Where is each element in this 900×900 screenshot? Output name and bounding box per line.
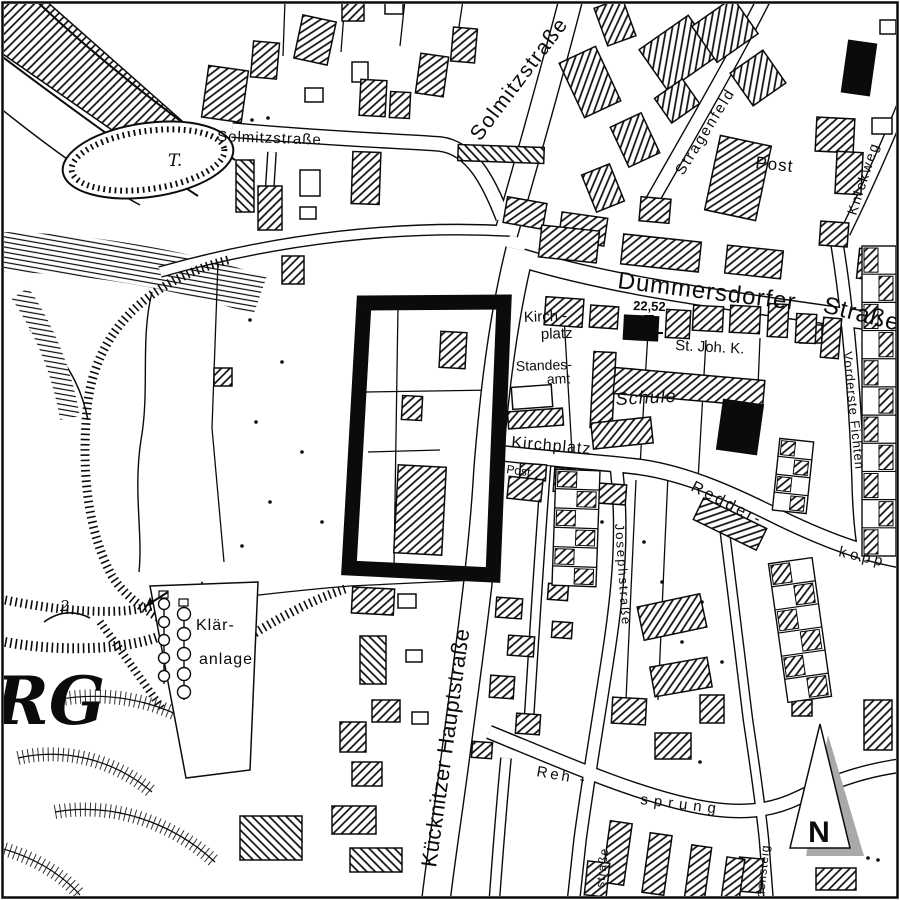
building <box>240 816 302 860</box>
building <box>258 186 282 230</box>
building <box>439 331 467 368</box>
tree-dot <box>866 856 870 860</box>
pond-label: T. <box>168 151 182 171</box>
poi-label-klaeranlage-1: Klär- <box>196 617 235 634</box>
tree-dot <box>680 640 684 644</box>
building <box>342 3 364 21</box>
building <box>351 587 394 615</box>
clarifier-circle <box>178 648 191 661</box>
terrace-cell <box>879 445 893 469</box>
building <box>880 20 896 34</box>
building <box>372 700 400 722</box>
building <box>412 712 428 724</box>
building <box>692 305 723 332</box>
building <box>406 650 422 662</box>
tree-dot <box>280 360 284 364</box>
terrace-cell <box>577 491 597 507</box>
clarifier-circle <box>178 686 191 699</box>
building <box>816 868 856 890</box>
terrace-row <box>862 246 896 556</box>
building <box>507 476 543 501</box>
clarifier-circle <box>159 671 170 682</box>
tree-dot <box>266 116 270 120</box>
terrace-cell <box>556 510 576 526</box>
building <box>398 594 416 608</box>
tree-dot <box>300 450 304 454</box>
building <box>590 351 616 428</box>
terrace-cell <box>807 676 829 698</box>
building <box>623 315 658 341</box>
map-label-rg: RG <box>0 662 105 740</box>
building <box>214 368 232 386</box>
terrace-cell <box>800 629 822 651</box>
building <box>350 848 402 872</box>
building <box>236 160 254 212</box>
clarifier-circle <box>159 653 170 664</box>
tree-dot <box>720 660 724 664</box>
terrace-cell <box>574 569 594 585</box>
tree-dot <box>268 500 272 504</box>
terrace-cell <box>879 333 893 357</box>
clarifier-circle <box>178 668 191 681</box>
building <box>589 305 618 329</box>
building <box>511 385 552 410</box>
terrace-cell <box>555 549 575 565</box>
building <box>515 713 540 735</box>
building <box>725 245 784 279</box>
building <box>351 152 381 205</box>
building <box>359 79 387 116</box>
elevation-label: 22,52 <box>633 298 666 314</box>
building <box>665 309 690 338</box>
tree-dot <box>660 580 664 584</box>
building <box>360 636 386 684</box>
clarifier-circle <box>159 617 170 628</box>
building <box>305 88 323 102</box>
square-label-kirchplatz-2: platz <box>541 325 573 343</box>
clarifier-circle <box>178 608 191 621</box>
building <box>300 207 316 219</box>
terrace-cell <box>879 389 893 413</box>
building <box>795 313 816 343</box>
terrace-cell <box>780 441 795 456</box>
tree-dot <box>254 420 258 424</box>
tree-dot <box>600 520 604 524</box>
building <box>352 762 382 786</box>
terrace-cell <box>776 476 791 491</box>
building <box>415 53 448 97</box>
building <box>819 221 849 247</box>
terrace-cell <box>777 609 799 631</box>
poi-label-school: Schule <box>615 386 677 409</box>
building <box>591 417 653 449</box>
building <box>507 408 563 429</box>
poi-label-klaeranlage-2: anlage <box>199 651 253 668</box>
building <box>864 700 892 750</box>
tree-dot <box>240 544 244 548</box>
terrace-cell <box>771 563 793 585</box>
building <box>507 635 534 657</box>
terrace-cell <box>557 471 577 487</box>
building <box>300 170 320 196</box>
poi-label-post-top: Post <box>755 153 795 176</box>
terrace-cell <box>879 502 893 526</box>
building <box>820 317 841 358</box>
poi-label-standesamt-2: amt <box>547 370 571 387</box>
tree-dot <box>876 858 880 862</box>
building <box>792 700 812 716</box>
building <box>471 741 492 758</box>
building <box>394 465 447 555</box>
poi-label-church: St. Joh. K. <box>675 337 745 358</box>
building <box>639 197 671 224</box>
building <box>340 722 366 752</box>
tree-dot <box>248 318 252 322</box>
north-label: N <box>808 816 830 849</box>
building <box>489 675 514 699</box>
clarifier-circle <box>178 628 191 641</box>
square-label-kirchplatz-1: Kirch - <box>524 307 568 326</box>
contour-label: 2 <box>59 597 70 615</box>
clarifier-circle <box>159 599 170 610</box>
building <box>401 395 422 420</box>
building <box>332 806 376 834</box>
map-canvas: SolmitzstraßeSolmitzstraßeStragenfeldKni… <box>0 0 900 900</box>
building <box>495 597 522 619</box>
terrace-cell <box>864 248 878 272</box>
map-frame: SolmitzstraßeSolmitzstraßeStragenfeldKni… <box>0 0 900 900</box>
building <box>655 733 691 759</box>
terrace-cell <box>575 530 595 546</box>
terrace-cell <box>793 460 808 475</box>
building <box>389 91 410 118</box>
terrace-cell <box>864 473 878 497</box>
building <box>250 41 279 79</box>
terrace-cell <box>784 655 806 677</box>
building <box>717 399 764 454</box>
terrace-cell <box>794 583 816 605</box>
building <box>451 27 478 63</box>
building <box>815 117 855 153</box>
terrace-cell <box>864 417 878 441</box>
building <box>202 65 249 122</box>
tree-dot <box>250 118 254 122</box>
building <box>551 621 572 638</box>
building <box>282 256 304 284</box>
building <box>611 697 646 725</box>
terrace-cell <box>864 361 878 385</box>
building <box>538 225 599 263</box>
tree-dot <box>642 540 646 544</box>
terrace-cell <box>879 276 893 300</box>
building <box>872 118 892 134</box>
tree-dot <box>320 520 324 524</box>
building <box>597 483 626 505</box>
building <box>700 695 724 723</box>
clarifier-circle <box>159 635 170 646</box>
terrace-row <box>552 469 600 586</box>
building <box>458 145 545 164</box>
terrace-cell <box>789 496 804 511</box>
tree-dot <box>698 760 702 764</box>
terrace-row <box>772 438 813 513</box>
clarifier-box <box>179 599 188 606</box>
